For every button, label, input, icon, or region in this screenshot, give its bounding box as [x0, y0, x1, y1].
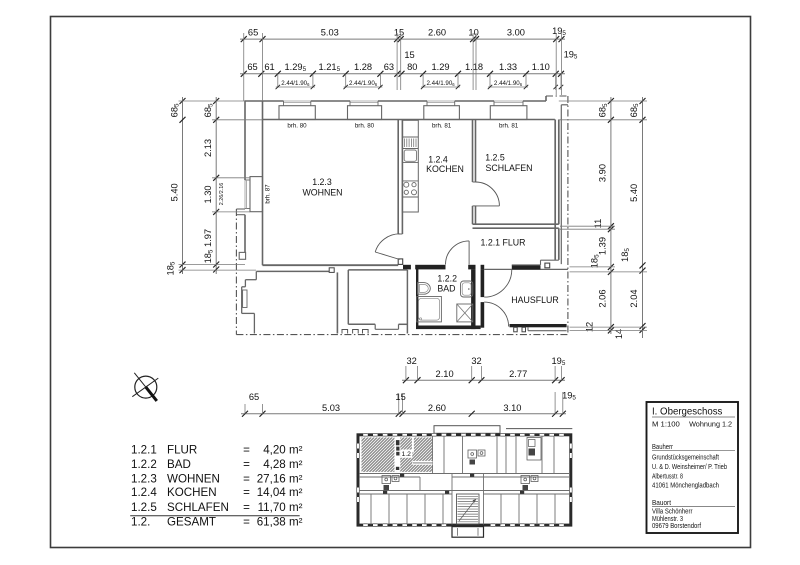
- svg-text:BAD: BAD: [437, 284, 455, 294]
- svg-text:1.2.: 1.2.: [131, 515, 150, 528]
- svg-text:3.90: 3.90: [598, 164, 608, 182]
- svg-text:brh. 87: brh. 87: [265, 184, 272, 204]
- svg-text:2.26/2.16: 2.26/2.16: [219, 183, 225, 205]
- svg-text:Mühlenstr. 3: Mühlenstr. 3: [652, 516, 683, 523]
- svg-text:5.40: 5.40: [170, 183, 180, 201]
- svg-text:1.97: 1.97: [203, 229, 213, 247]
- svg-text:32: 32: [407, 356, 417, 366]
- svg-text:63: 63: [384, 62, 394, 72]
- svg-text:1.33: 1.33: [499, 62, 517, 72]
- svg-text:09679 Borstendorf: 09679 Borstendorf: [652, 523, 701, 530]
- svg-text:1.10: 1.10: [532, 62, 550, 72]
- svg-text:Albertusstr. 8: Albertusstr. 8: [652, 473, 683, 480]
- svg-text:2.44/1.906: 2.44/1.906: [281, 80, 310, 87]
- svg-text:=: =: [243, 501, 250, 514]
- svg-text:10: 10: [468, 28, 478, 38]
- svg-text:SCHLAFEN: SCHLAFEN: [167, 501, 229, 514]
- svg-text:80: 80: [407, 62, 417, 72]
- svg-text:Villa Schönherr: Villa Schönherr: [652, 509, 693, 516]
- svg-text:14,04 m²: 14,04 m²: [257, 486, 303, 499]
- svg-text:1.2.5: 1.2.5: [131, 501, 157, 514]
- svg-text:BAD: BAD: [167, 458, 191, 471]
- svg-text:HAUSFLUR: HAUSFLUR: [511, 295, 558, 305]
- svg-text:1.30: 1.30: [203, 185, 213, 203]
- svg-text:15: 15: [404, 50, 414, 60]
- svg-text:2.10: 2.10: [436, 369, 454, 379]
- svg-text:15: 15: [394, 28, 404, 38]
- svg-text:SCHLAFEN: SCHLAFEN: [486, 163, 533, 173]
- svg-text:KOCHEN: KOCHEN: [426, 164, 464, 174]
- svg-text:Wohnung 1.2: Wohnung 1.2: [689, 419, 732, 428]
- svg-text:M 1:100: M 1:100: [652, 419, 680, 428]
- svg-text:FLUR: FLUR: [167, 444, 197, 457]
- svg-text:=: =: [243, 486, 250, 499]
- svg-text:2.04: 2.04: [629, 289, 639, 307]
- svg-text:2.06: 2.06: [598, 289, 608, 307]
- svg-text:Bauherr: Bauherr: [652, 442, 673, 451]
- svg-text:61: 61: [264, 62, 274, 72]
- svg-text:1.2.4: 1.2.4: [428, 155, 448, 165]
- svg-text:GESAMT: GESAMT: [167, 515, 216, 528]
- svg-text:=: =: [243, 458, 250, 471]
- svg-text:4,20 m²: 4,20 m²: [263, 444, 302, 457]
- svg-text:1.2: 1.2: [401, 451, 411, 458]
- svg-text:1.18: 1.18: [465, 62, 483, 72]
- svg-text:=: =: [243, 472, 250, 485]
- svg-text:3.00: 3.00: [507, 28, 525, 38]
- svg-text:4,28 m²: 4,28 m²: [263, 458, 302, 471]
- svg-text:2.44/1.906: 2.44/1.906: [426, 80, 455, 87]
- svg-text:41061 Mönchengladbach: 41061 Mönchengladbach: [652, 483, 719, 490]
- svg-text:5.03: 5.03: [322, 403, 340, 413]
- svg-text:1.2.1: 1.2.1: [131, 444, 157, 457]
- svg-text:U. & D. Weinsheimer/ P. Trieb: U. & D. Weinsheimer/ P. Trieb: [652, 464, 727, 471]
- svg-text:2.44/1.906: 2.44/1.906: [494, 80, 523, 87]
- svg-text:Bauort: Bauort: [652, 498, 671, 507]
- svg-text:brh. 81: brh. 81: [499, 123, 519, 130]
- svg-text:15: 15: [395, 392, 405, 402]
- svg-text:5.40: 5.40: [629, 184, 639, 202]
- svg-text:1.2.4: 1.2.4: [131, 486, 157, 499]
- svg-text:27,16 m²: 27,16 m²: [257, 472, 303, 485]
- svg-text:1.2.2: 1.2.2: [131, 458, 157, 471]
- svg-text:11: 11: [593, 219, 603, 229]
- svg-text:61,38 m²: 61,38 m²: [257, 515, 303, 528]
- svg-text:KOCHEN: KOCHEN: [167, 486, 217, 499]
- svg-text:brh. 80: brh. 80: [355, 123, 375, 130]
- svg-text:11,70 m²: 11,70 m²: [258, 501, 303, 514]
- svg-text:=: =: [243, 444, 250, 457]
- svg-text:3.10: 3.10: [503, 403, 521, 413]
- svg-text:2.44/1.906: 2.44/1.906: [349, 80, 378, 87]
- svg-text:65: 65: [248, 28, 258, 38]
- svg-text:1.2.1 FLUR: 1.2.1 FLUR: [481, 237, 526, 247]
- svg-text:1.39: 1.39: [598, 237, 608, 255]
- svg-text:Grundstücksgemeinschaft: Grundstücksgemeinschaft: [652, 455, 719, 462]
- svg-text:32: 32: [471, 356, 481, 366]
- svg-text:1.29: 1.29: [431, 62, 449, 72]
- svg-text:2.60: 2.60: [428, 28, 446, 38]
- svg-text:65: 65: [249, 392, 259, 402]
- svg-text:2.60: 2.60: [428, 403, 446, 413]
- svg-text:WOHNEN: WOHNEN: [302, 188, 342, 198]
- svg-text:=: =: [243, 515, 250, 528]
- svg-text:1.28: 1.28: [354, 62, 372, 72]
- svg-text:1.2.5: 1.2.5: [485, 153, 505, 163]
- svg-text:1.2.2: 1.2.2: [437, 274, 457, 284]
- svg-text:2.13: 2.13: [203, 139, 213, 157]
- svg-text:brh. 81: brh. 81: [432, 123, 452, 130]
- svg-text:5.03: 5.03: [321, 28, 339, 38]
- svg-text:1.2.3: 1.2.3: [131, 472, 157, 485]
- svg-text:WOHNEN: WOHNEN: [167, 472, 220, 485]
- svg-text:65: 65: [247, 62, 257, 72]
- svg-text:2.77: 2.77: [509, 369, 527, 379]
- svg-text:brh. 80: brh. 80: [287, 123, 307, 130]
- svg-text:I. Obergeschoss: I. Obergeschoss: [652, 406, 723, 417]
- svg-text:1.2.3: 1.2.3: [312, 177, 332, 187]
